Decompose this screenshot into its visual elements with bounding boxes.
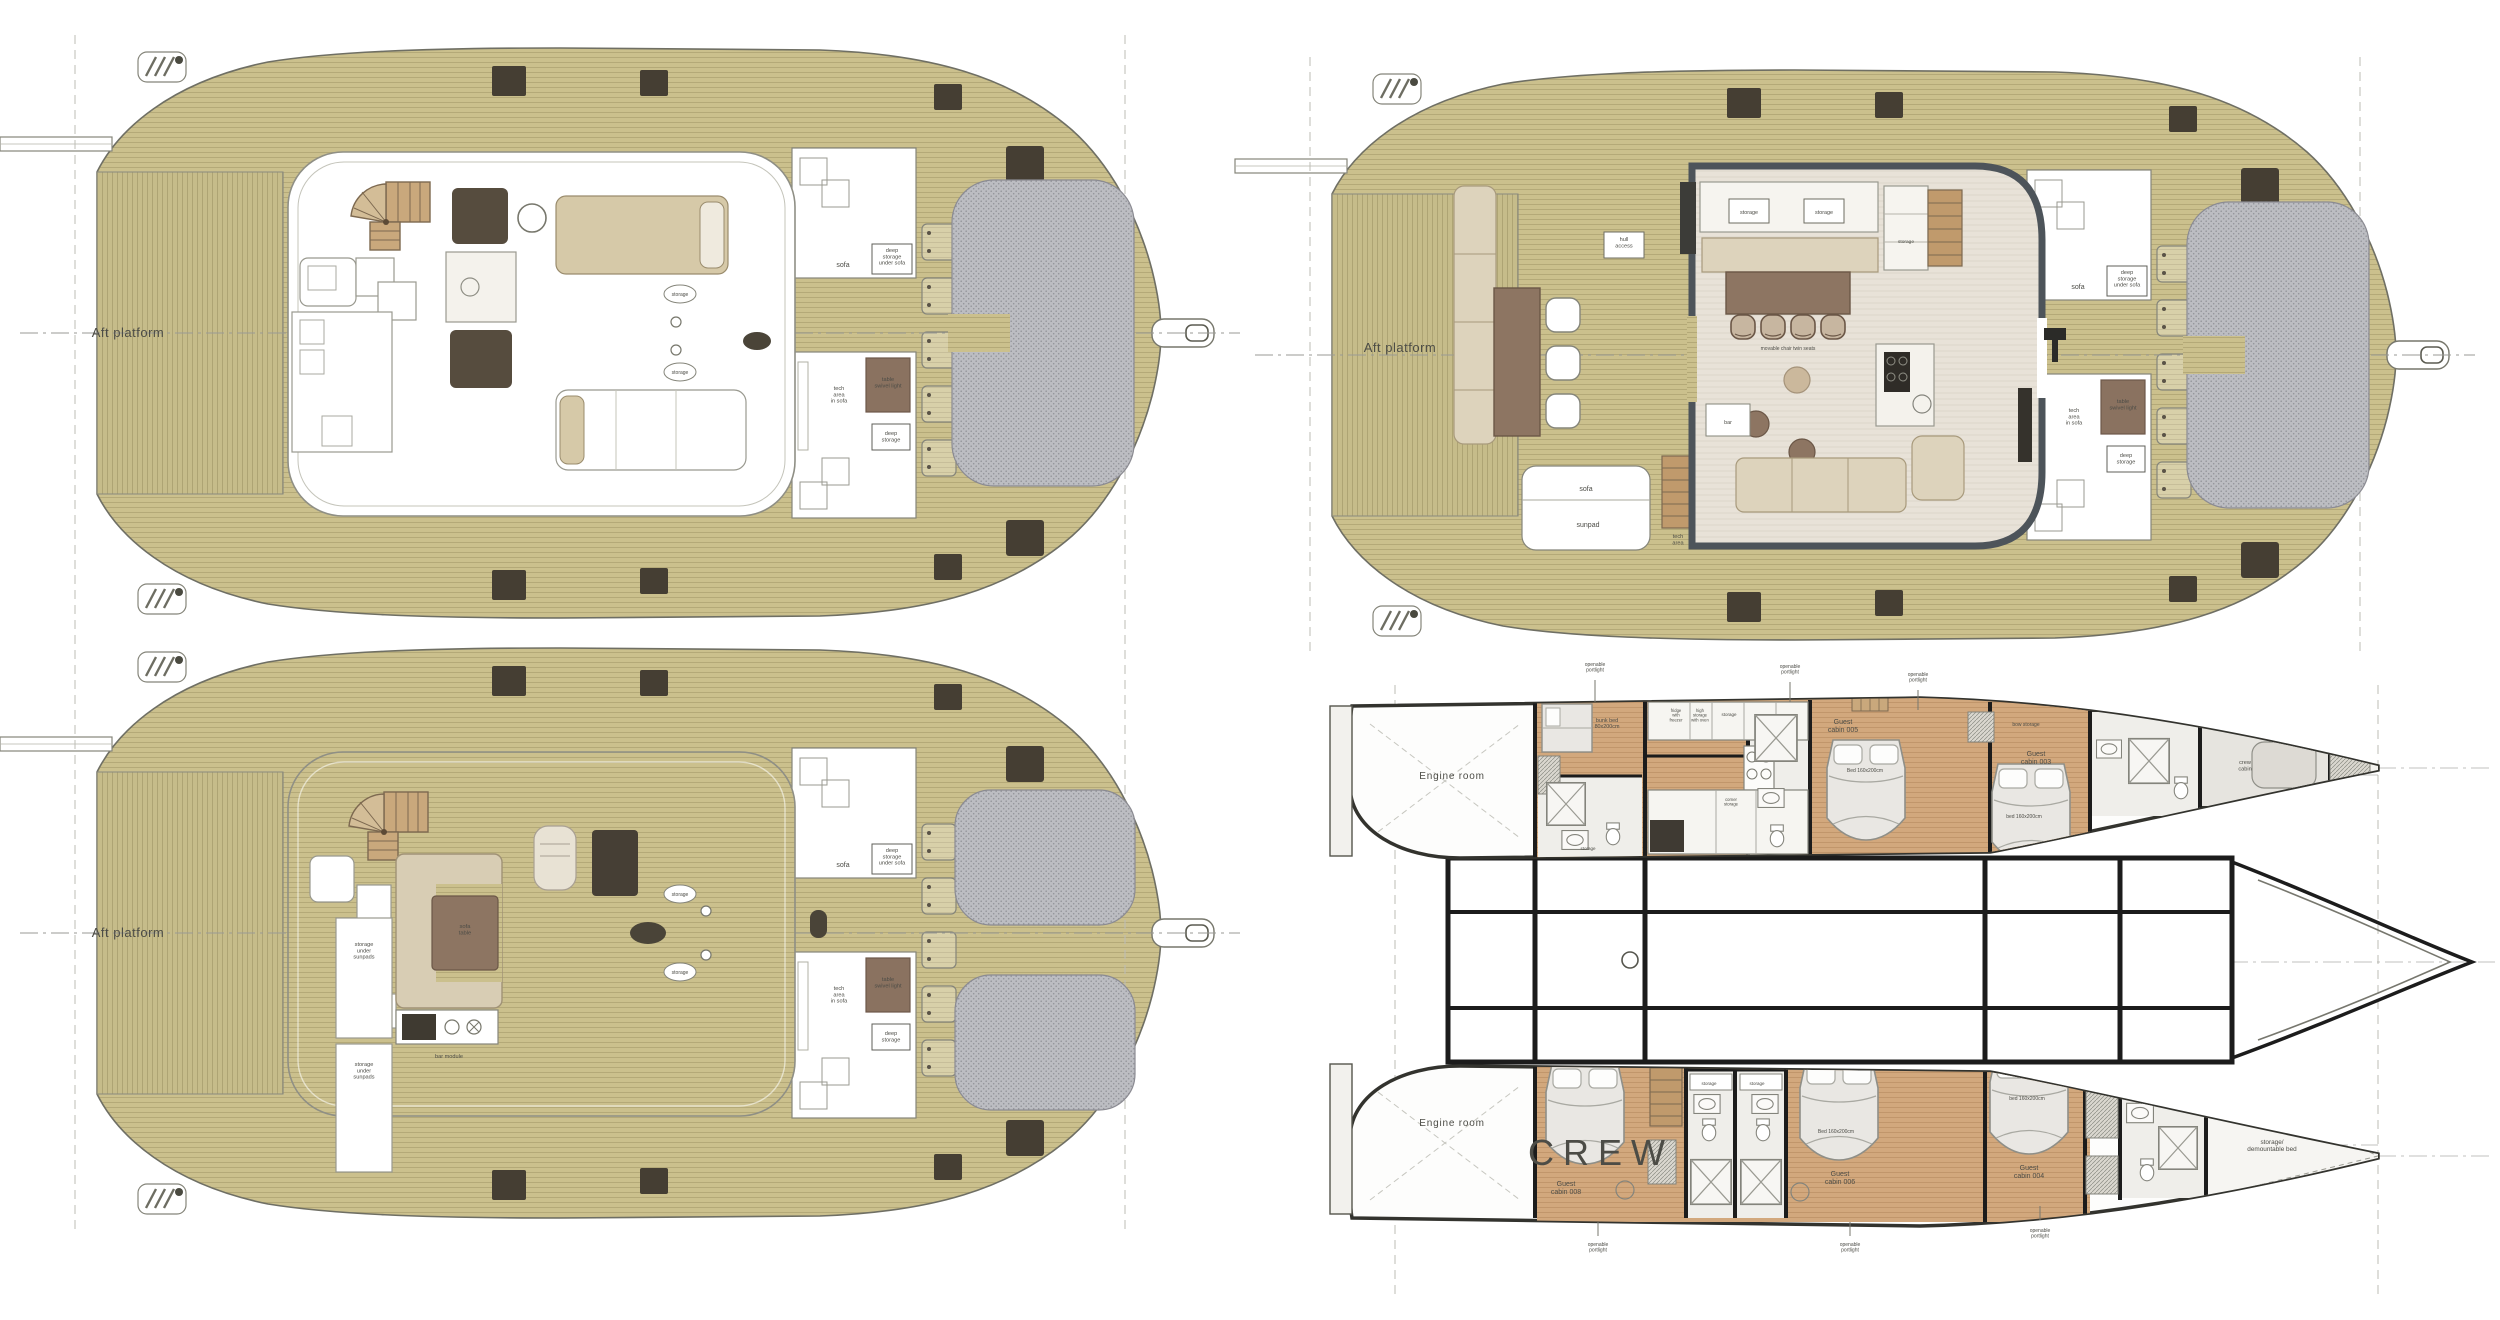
transom-sofa [1454,186,1496,444]
plan-label: storage [1740,210,1758,216]
plan-label: storage [672,970,689,976]
tv [592,830,638,896]
galley-tall-units [1884,186,1928,270]
coffee-table [1784,367,1810,393]
flybridge-interior [288,152,795,516]
plan-label: bow storage [2012,722,2039,728]
cockpit-table [1494,288,1540,436]
plan-label: sofa [836,262,849,269]
plan-label: movable chair twin seats [1761,346,1816,352]
plan-label: storage [1701,1081,1717,1086]
trampoline [955,975,1135,1110]
plan-label: bar [1724,420,1732,426]
plan-label: storage [1898,239,1914,245]
bridgedeck-structure [1448,858,2232,1062]
skylounge-interior [288,752,827,1172]
helm-seat [450,330,512,388]
plan-label: storage [1721,712,1737,717]
saloon [1680,166,2066,546]
saloon-sofa [1736,458,1906,512]
plan-label: Aft platform [1364,340,1436,355]
plan-label: techarea [1672,534,1684,546]
trampoline [955,790,1135,925]
plan-label: Bed 160x200cm [1847,768,1883,774]
tv [2018,388,2032,462]
yacht-deck-plan-sheet: Aft platformsofadeepstorageunder sofatec… [0,0,2500,1320]
plan-label: Engine room [1419,1118,1485,1129]
dining-table [1726,272,1850,314]
chaise-lounger [534,826,576,890]
plan-label: openableportlight [1588,1242,1609,1254]
table-light [743,332,771,350]
plan-label: cornerstorage [1724,797,1739,807]
plan-label: openableportlight [1780,664,1801,676]
plan-label: sofa [836,862,849,869]
plan-label: sofa [2071,284,2084,291]
plan-label: bed 160x200cm [2009,1096,2045,1102]
bow-nacelle [2232,862,2472,1058]
fridge-column [1680,182,1696,254]
plan-label: openableportlight [2030,1228,2051,1240]
plan-label: openableportlight [1840,1242,1861,1254]
plan-label: bunk bed80x200cm [1595,718,1620,730]
helm-seat [452,188,508,244]
deck-plans-drawing: Aft platformsofadeepstorageunder sofatec… [0,0,2500,1320]
plan-label: openableportlight [1908,672,1929,684]
plan-label: crewcabin [2238,760,2252,772]
lower-deck-hull-starboard [1349,1054,2386,1236]
plan-label: storage [672,370,689,376]
plan-label: storage [672,292,689,298]
plan-label: bed 160x200cm [2006,814,2042,820]
settee [1702,238,1878,272]
plan-flybridge-lower [0,635,1240,1230]
plan-label: bar module [435,1054,463,1060]
plan-label: storage [1815,210,1833,216]
transom-step [1330,706,1352,856]
plan-label: sunpad [1577,522,1600,529]
plan-label: openableportlight [1585,662,1606,674]
armchair [1912,436,1964,500]
cockpit-sofa-sunpad [1522,466,1650,550]
transom-step [1330,1064,1352,1214]
plan-label: storage [672,892,689,898]
plan-flybridge-upper [0,35,1240,630]
plan-label: sofa [1579,486,1592,493]
galley-cabinets [1700,182,1878,232]
plan-label: Engine room [1419,771,1485,782]
plan-label: sofatable [459,924,472,936]
plan-label: storage [1749,1081,1765,1086]
plan-label: Bed 160x200cm [1818,1129,1854,1135]
plan-label: storage [1580,846,1596,851]
grill [810,910,827,938]
plan-label: Aft platform [92,925,164,940]
sunpad-storage-console [336,918,392,1038]
plan-label: Aft platform [92,325,164,340]
plan-label: CREW [1528,1132,1674,1173]
plan-lower-deck [1330,680,2495,1300]
mast-foot [2044,328,2066,340]
